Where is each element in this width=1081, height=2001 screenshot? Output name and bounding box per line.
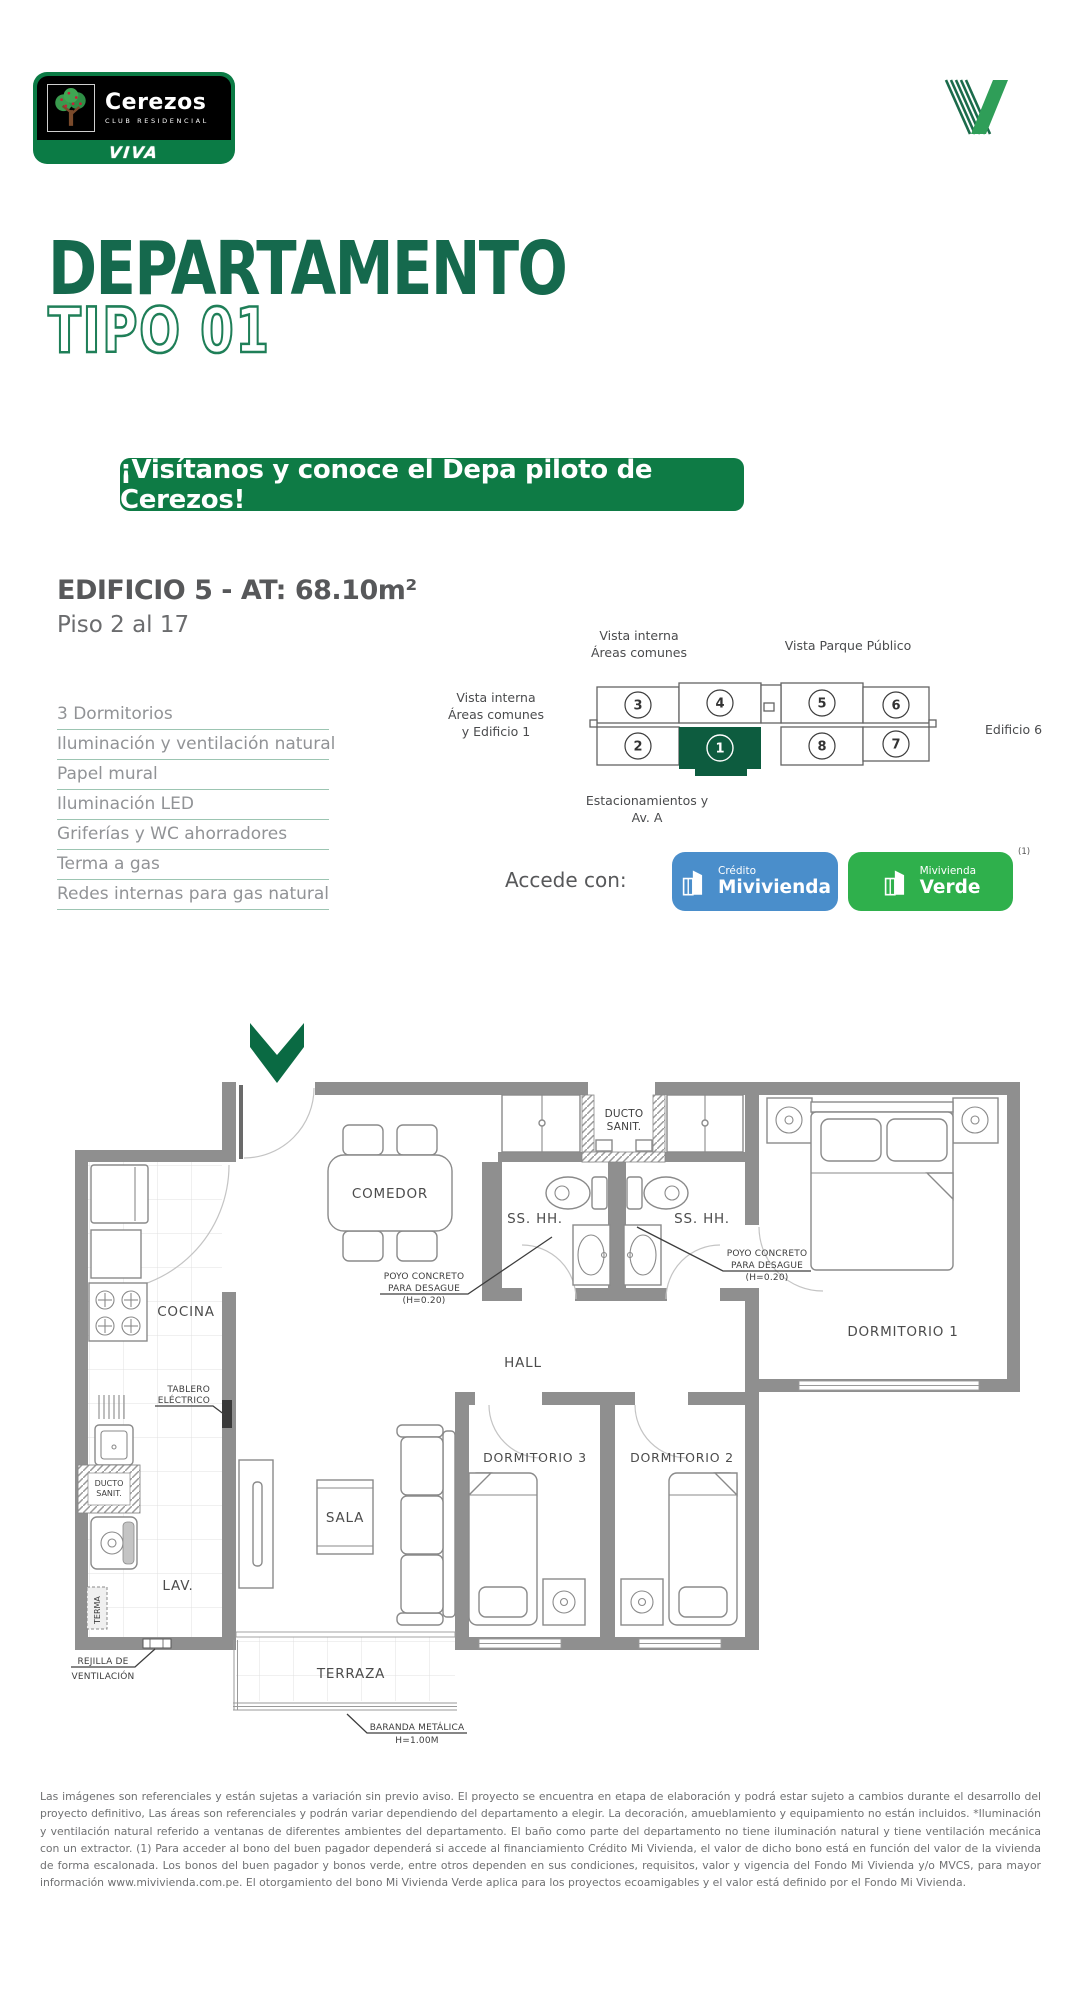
- room-label-cocina: COCINA: [157, 1304, 215, 1320]
- entrance-arrow-icon: [250, 1023, 304, 1083]
- credito-mivivienda-badge[interactable]: Crédito Mivivienda: [672, 852, 838, 911]
- legal-disclaimer: Las imágenes son referenciales y están s…: [40, 1788, 1041, 1892]
- terma-label: TERMA: [93, 1596, 102, 1625]
- keyplan-unit-number: 2: [633, 740, 642, 755]
- keyplan-label-top-left: Vista interna Áreas comunes: [578, 628, 700, 662]
- logo-tagline: CLUB RESIDENCIAL: [105, 117, 209, 125]
- bedroom1-furniture: DORMITORIO 1: [767, 1098, 998, 1340]
- page-subtitle: TIPO 01: [48, 300, 271, 362]
- svg-text:VENTILACIÓN: VENTILACIÓN: [72, 1670, 135, 1682]
- logo-text-block: Cerezos CLUB RESIDENCIAL: [105, 92, 209, 125]
- cherry-tree-icon: [47, 84, 95, 132]
- dining-furniture: COMEDOR: [328, 1125, 452, 1261]
- verde-top-label: Mivivienda: [920, 866, 981, 878]
- keyplan-unit-number: 5: [817, 697, 826, 712]
- room-label-lav: LAV.: [162, 1578, 193, 1594]
- keyplan-unit-number: 4: [715, 697, 724, 712]
- cerezos-logo: Cerezos CLUB RESIDENCIAL VIVA: [33, 72, 235, 164]
- bedroom2-furniture: DORMITORIO 2: [621, 1450, 737, 1625]
- building-floors: Piso 2 al 17: [57, 612, 189, 638]
- svg-text:DUCTO: DUCTO: [605, 1108, 644, 1120]
- viva-v-icon: [938, 76, 1014, 140]
- viva-strip: VIVA: [37, 140, 231, 164]
- svg-text:ELÉCTRICO: ELÉCTRICO: [158, 1394, 210, 1406]
- room-label-comedor: COMEDOR: [352, 1186, 428, 1202]
- svg-text:POYO CONCRETO: POYO CONCRETO: [727, 1249, 807, 1259]
- svg-text:H=1.00M: H=1.00M: [395, 1736, 439, 1746]
- feature-item: Iluminación y ventilación natural: [57, 730, 329, 760]
- svg-text:(H=0.20): (H=0.20): [746, 1273, 789, 1283]
- mivivienda-verde-badge[interactable]: Mivivienda Verde: [848, 852, 1013, 911]
- keyplan-label-right: Edificio 6: [985, 722, 1042, 739]
- footnote-marker: (1): [1018, 847, 1030, 857]
- visit-banner: ¡Visítanos y conoce el Depa piloto de Ce…: [120, 458, 744, 511]
- railing-annotation: BARANDA METÁLICA H=1.00M: [347, 1714, 467, 1746]
- keyplan-label-top-right: Vista Parque Público: [748, 638, 948, 655]
- bedroom3-furniture: DORMITORIO 3: [469, 1450, 587, 1625]
- svg-text:(H=0.20): (H=0.20): [403, 1296, 446, 1306]
- access-label: Accede con:: [505, 868, 627, 892]
- keyplan-unit-number: 8: [817, 740, 826, 755]
- concrete-curb-annotation-right: POYO CONCRETO PARA DESAGUE (H=0.20): [637, 1227, 811, 1283]
- keyplan-unit-number: 6: [891, 699, 900, 714]
- credito-top-label: Crédito: [718, 866, 831, 878]
- sanitary-duct-top: DUCTO SANIT.: [582, 1095, 665, 1162]
- keyplan-label-left: Vista interna Áreas comunes y Edificio 1: [426, 690, 566, 741]
- room-label-terraza: TERRAZA: [316, 1666, 385, 1682]
- feature-item: Terma a gas: [57, 850, 329, 880]
- svg-text:SANIT.: SANIT.: [607, 1121, 642, 1133]
- room-label-dorm1: DORMITORIO 1: [847, 1324, 958, 1340]
- svg-text:DUCTO: DUCTO: [95, 1479, 124, 1488]
- svg-text:SANIT.: SANIT.: [96, 1489, 122, 1498]
- svg-text:PARA DESAGUE: PARA DESAGUE: [731, 1261, 803, 1271]
- room-label-sshh-left: SS. HH.: [507, 1211, 563, 1227]
- keyplan-label-bottom: Estacionamientos y Av. A: [583, 793, 711, 827]
- svg-text:BARANDA METÁLICA: BARANDA METÁLICA: [370, 1721, 465, 1733]
- room-label-hall: HALL: [504, 1355, 542, 1371]
- logo-brand-name: Cerezos: [105, 92, 209, 114]
- floorplan-drawing: DUCTO SANIT. COMEDOR: [55, 995, 1035, 1755]
- mivivienda-building-icon: [679, 866, 709, 898]
- keyplan-unit-number: 7: [891, 738, 900, 753]
- room-label-sshh-right: SS. HH.: [674, 1211, 730, 1227]
- credito-bottom-label: Mivivienda: [718, 878, 831, 897]
- svg-text:TABLERO: TABLERO: [166, 1385, 210, 1395]
- keyplan-diagram: 3 4 5 6 2 1 8 7: [583, 663, 945, 789]
- building-heading: EDIFICIO 5 - AT: 68.10m²: [57, 575, 417, 606]
- svg-text:POYO CONCRETO: POYO CONCRETO: [384, 1272, 464, 1282]
- living-furniture: SALA: [239, 1425, 455, 1625]
- svg-text:PARA DESAGUE: PARA DESAGUE: [388, 1284, 460, 1294]
- room-label-dorm3: DORMITORIO 3: [483, 1450, 587, 1465]
- keyplan-unit-number: 3: [633, 699, 642, 714]
- visit-banner-text: ¡Visítanos y conoce el Depa piloto de Ce…: [120, 455, 744, 515]
- feature-item: 3 Dormitorios: [57, 700, 329, 730]
- verde-bottom-label: Verde: [920, 878, 981, 897]
- keyplan-unit-number-highlighted: 1: [715, 742, 724, 757]
- feature-item: Griferías y WC ahorradores: [57, 820, 329, 850]
- room-label-sala: SALA: [326, 1510, 364, 1526]
- viva-wordmark: VIVA: [108, 143, 160, 162]
- feature-item: Papel mural: [57, 760, 329, 790]
- svg-text:REJILLA DE: REJILLA DE: [77, 1657, 128, 1667]
- cerezos-logo-inner: Cerezos CLUB RESIDENCIAL: [37, 76, 231, 140]
- feature-item: Iluminación LED: [57, 790, 329, 820]
- mivivienda-building-icon: [881, 866, 911, 898]
- room-label-dorm2: DORMITORIO 2: [630, 1450, 734, 1465]
- feature-item: Redes internas para gas natural: [57, 880, 329, 910]
- feature-list: 3 Dormitorios Iluminación y ventilación …: [57, 700, 329, 910]
